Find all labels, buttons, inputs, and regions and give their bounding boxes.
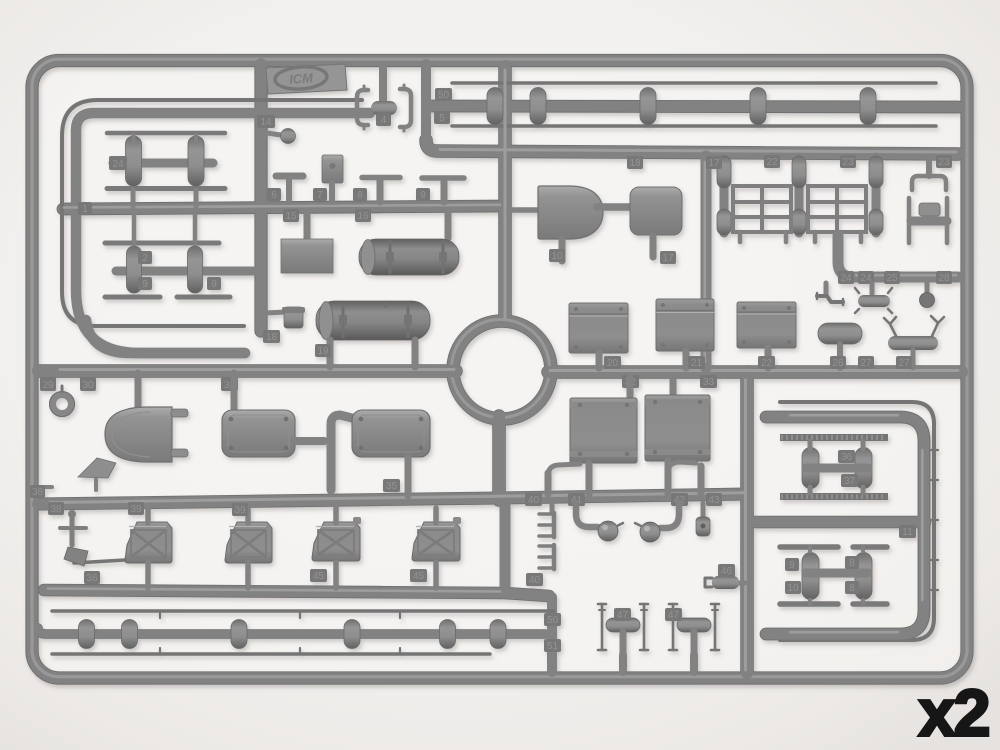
svg-text:35: 35: [386, 481, 398, 492]
svg-text:9: 9: [211, 279, 217, 290]
svg-text:5: 5: [439, 113, 445, 124]
svg-text:22: 22: [766, 157, 778, 168]
svg-text:39: 39: [234, 505, 246, 516]
svg-text:25: 25: [886, 273, 898, 284]
svg-text:29: 29: [42, 380, 54, 391]
svg-text:9: 9: [420, 190, 426, 201]
svg-text:9: 9: [142, 279, 148, 290]
svg-text:9: 9: [789, 560, 795, 571]
svg-text:37: 37: [844, 476, 856, 487]
svg-text:19: 19: [317, 346, 329, 357]
svg-text:15: 15: [285, 211, 297, 222]
svg-text:4: 4: [381, 115, 387, 126]
svg-text:27: 27: [860, 358, 872, 369]
svg-text:18: 18: [629, 158, 641, 169]
svg-text:16: 16: [357, 211, 369, 222]
svg-text:18: 18: [266, 332, 278, 343]
svg-text:36: 36: [86, 573, 98, 584]
svg-text:27: 27: [898, 358, 910, 369]
svg-text:1: 1: [82, 204, 88, 215]
svg-text:46: 46: [721, 566, 733, 577]
svg-text:45: 45: [313, 571, 325, 582]
svg-text:40: 40: [529, 575, 541, 586]
svg-text:43: 43: [708, 495, 720, 506]
svg-text:47: 47: [617, 610, 629, 621]
svg-text:24: 24: [840, 273, 852, 284]
svg-text:36: 36: [841, 452, 853, 463]
svg-text:28: 28: [938, 273, 950, 284]
svg-text:6: 6: [271, 190, 277, 201]
svg-text:14: 14: [260, 117, 272, 128]
svg-text:23: 23: [938, 157, 950, 168]
svg-text:24: 24: [112, 159, 124, 170]
svg-text:38: 38: [32, 487, 44, 498]
svg-text:2: 2: [142, 253, 148, 264]
svg-text:17: 17: [708, 158, 720, 169]
svg-text:8: 8: [849, 583, 855, 594]
svg-text:40: 40: [528, 495, 540, 506]
svg-text:10: 10: [787, 583, 799, 594]
svg-text:7: 7: [317, 190, 323, 201]
svg-text:45: 45: [413, 571, 425, 582]
svg-text:38: 38: [50, 504, 62, 515]
svg-text:8: 8: [849, 558, 855, 569]
svg-text:23: 23: [842, 157, 854, 168]
svg-text:26: 26: [832, 358, 844, 369]
svg-text:33: 33: [703, 377, 715, 388]
svg-text:17: 17: [662, 253, 674, 264]
svg-text:30: 30: [82, 380, 94, 391]
svg-text:8: 8: [357, 190, 363, 201]
svg-text:ICM: ICM: [289, 70, 315, 87]
svg-text:21: 21: [691, 358, 703, 369]
svg-text:22: 22: [761, 358, 773, 369]
svg-text:20: 20: [607, 358, 619, 369]
svg-text:51: 51: [547, 641, 559, 652]
svg-text:50: 50: [547, 615, 559, 626]
svg-text:47: 47: [668, 610, 680, 621]
svg-text:10: 10: [551, 251, 563, 262]
svg-text:x2: x2: [919, 676, 989, 750]
svg-text:39: 39: [130, 504, 142, 515]
svg-text:11: 11: [902, 527, 913, 538]
svg-text:50: 50: [438, 90, 450, 101]
